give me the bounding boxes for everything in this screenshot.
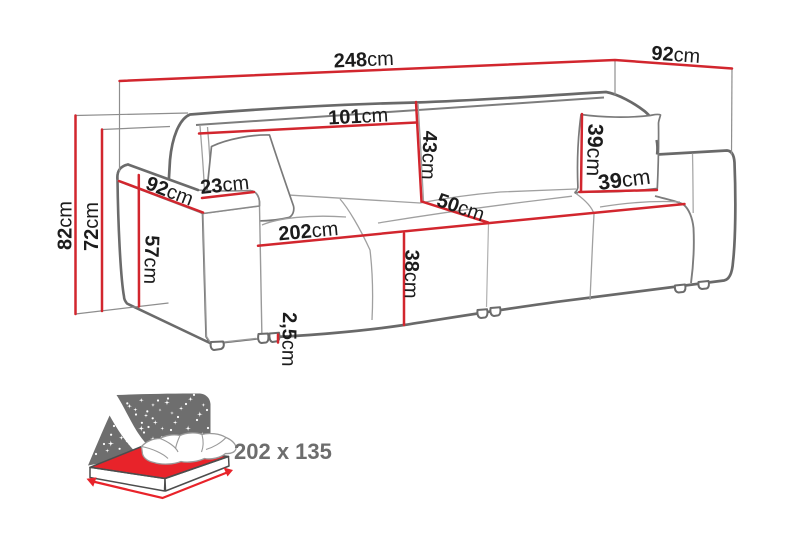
svg-text:248cm: 248cm xyxy=(333,48,394,73)
svg-text:43cm: 43cm xyxy=(417,130,441,180)
svg-text:2,5cm: 2,5cm xyxy=(277,312,300,367)
svg-text:82cm: 82cm xyxy=(55,201,77,250)
svg-text:38cm: 38cm xyxy=(400,249,423,298)
svg-text:101cm: 101cm xyxy=(328,104,389,129)
svg-text:92cm: 92cm xyxy=(651,43,701,68)
svg-text:39cm: 39cm xyxy=(582,123,608,176)
svg-text:57cm: 57cm xyxy=(139,235,163,285)
svg-text:72cm: 72cm xyxy=(81,202,103,251)
svg-text:202 x 135: 202 x 135 xyxy=(234,439,332,464)
